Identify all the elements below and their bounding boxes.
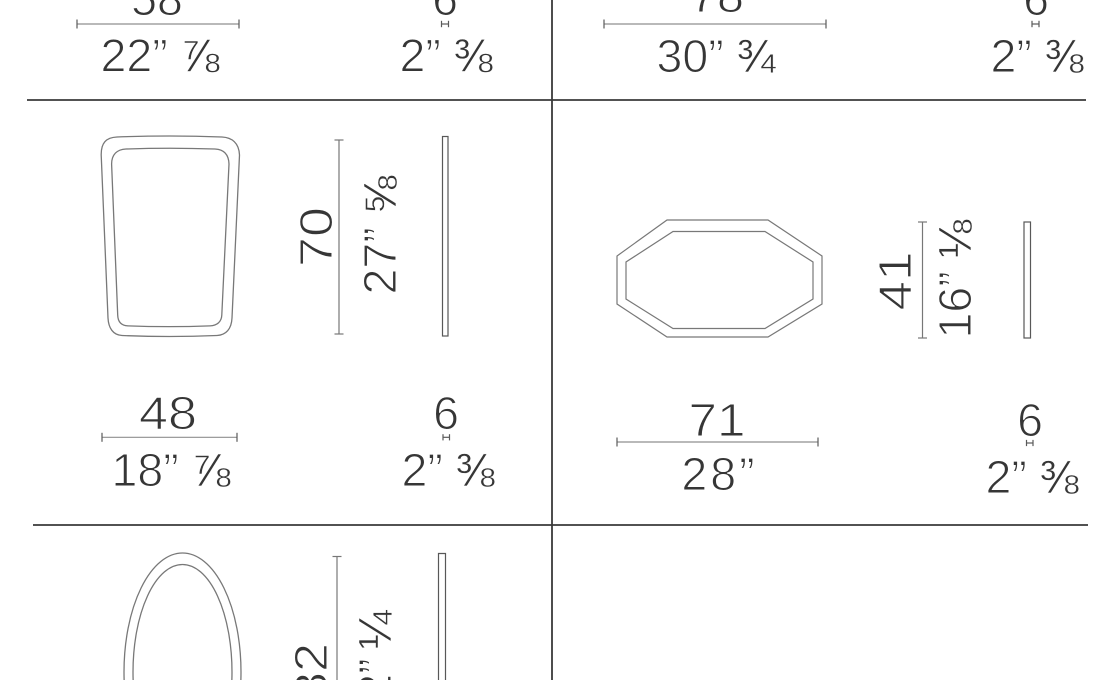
svg-text:70: 70 xyxy=(290,207,342,267)
svg-text:32” ¼: 32” ¼ xyxy=(349,609,401,680)
svg-text:18” ⅞: 18” ⅞ xyxy=(112,444,231,496)
svg-text:6: 6 xyxy=(1017,394,1043,446)
svg-text:2” ⅜: 2” ⅜ xyxy=(990,30,1083,82)
svg-text:16” ⅛: 16” ⅛ xyxy=(929,219,981,338)
svg-text:6: 6 xyxy=(1023,0,1049,25)
svg-text:2” ⅜: 2” ⅜ xyxy=(401,444,494,496)
svg-text:30” ¾: 30” ¾ xyxy=(657,30,777,82)
svg-text:82: 82 xyxy=(285,643,337,680)
svg-text:6: 6 xyxy=(432,0,458,25)
svg-text:78: 78 xyxy=(690,0,744,22)
svg-text:2” ⅜: 2” ⅜ xyxy=(985,451,1078,503)
svg-text:48: 48 xyxy=(139,387,197,439)
svg-text:2” ⅜: 2” ⅜ xyxy=(399,30,492,82)
svg-text:6: 6 xyxy=(433,387,459,439)
svg-text:71: 71 xyxy=(689,394,746,446)
svg-text:41: 41 xyxy=(869,252,921,311)
svg-text:58: 58 xyxy=(131,0,183,25)
svg-text:22” ⅞: 22” ⅞ xyxy=(101,30,220,82)
svg-text:28”: 28” xyxy=(681,448,757,500)
svg-text:27” ⅝: 27” ⅝ xyxy=(354,175,406,294)
